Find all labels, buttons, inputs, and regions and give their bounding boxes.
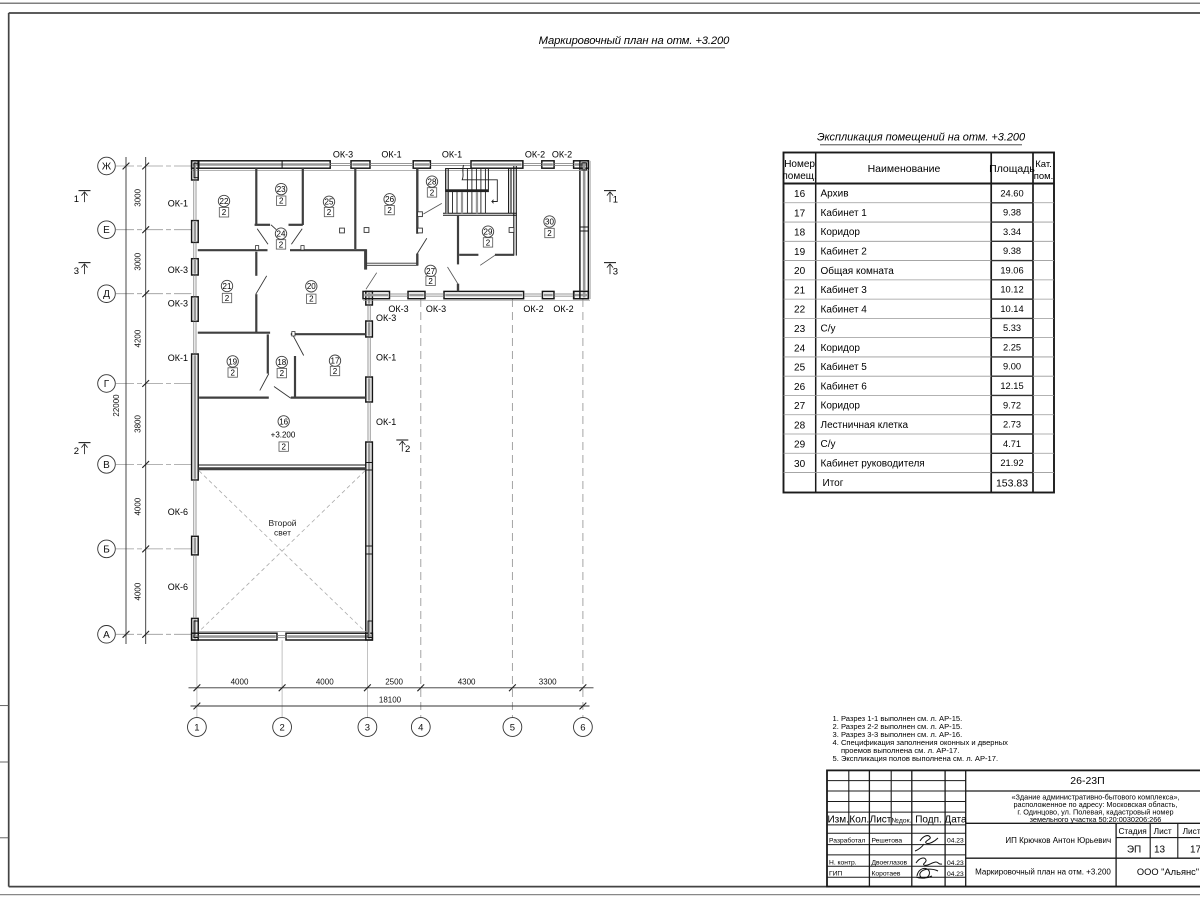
svg-text:Наименование: Наименование [868,163,941,175]
svg-text:Коридор: Коридор [821,343,861,354]
svg-text:4000: 4000 [134,582,143,600]
svg-text:2: 2 [428,277,433,286]
svg-text:2: 2 [387,206,392,215]
svg-text:26: 26 [794,382,806,393]
svg-text:4300: 4300 [458,677,476,686]
svg-text:пом.: пом. [1034,171,1054,182]
svg-text:Б: Б [103,544,110,555]
svg-text:свет: свет [274,527,291,537]
svg-text:ОК-3: ОК-3 [168,298,188,308]
svg-text:В: В [103,460,110,471]
svg-text:5. Экспликация полов выполнена: 5. Экспликация полов выполнена см. л. АР… [833,754,999,763]
svg-text:30: 30 [545,217,554,226]
svg-text:Кол.: Кол. [849,815,869,826]
svg-text:ОК-3: ОК-3 [376,313,396,323]
svg-text:Кат.: Кат. [1035,159,1052,170]
svg-text:2.25: 2.25 [1003,342,1021,352]
svg-text:Кабинет 5: Кабинет 5 [821,361,868,373]
svg-text:16: 16 [794,189,806,200]
svg-text:Д: Д [103,289,110,300]
svg-text:22: 22 [220,197,229,206]
svg-text:Номер: Номер [784,159,815,170]
svg-text:Кабинет 2: Кабинет 2 [821,246,868,258]
svg-text:Итог: Итог [823,478,844,489]
svg-text:24: 24 [794,343,806,354]
svg-text:ГИП: ГИП [829,871,842,878]
svg-text:ОК-3: ОК-3 [426,304,446,314]
svg-text:+3.200: +3.200 [271,430,296,439]
svg-text:2: 2 [281,443,286,452]
svg-text:29: 29 [794,440,806,451]
svg-text:ОК-6: ОК-6 [168,507,188,517]
svg-text:2: 2 [430,188,435,197]
svg-text:10.14: 10.14 [1000,304,1023,314]
svg-text:ЭП: ЭП [1127,845,1141,856]
svg-text:2: 2 [280,369,285,378]
svg-text:помещ.: помещ. [782,171,816,182]
svg-text:25: 25 [325,198,334,207]
svg-text:Коридор: Коридор [821,401,861,412]
svg-text:2500: 2500 [385,677,403,686]
svg-text:23: 23 [277,185,286,194]
svg-text:Листов: Листов [1183,826,1200,836]
svg-text:Ж: Ж [102,162,112,173]
svg-text:18100: 18100 [379,696,402,705]
svg-text:ОК-2: ОК-2 [523,304,543,314]
svg-text:ОК-1: ОК-1 [168,353,188,363]
svg-text:земельного участка 50:20:00302: земельного участка 50:20:0030206:266 [1030,815,1162,824]
svg-text:ИП Крючков Антон Юрьевич: ИП Крючков Антон Юрьевич [1005,836,1111,845]
svg-text:22: 22 [794,305,806,316]
svg-text:9.00: 9.00 [1003,362,1021,372]
svg-text:С/у: С/у [821,324,836,335]
svg-text:2: 2 [309,295,314,304]
svg-text:19: 19 [228,357,237,366]
svg-text:2: 2 [279,197,284,206]
svg-text:ОК-1: ОК-1 [168,199,188,209]
svg-text:ОК-2: ОК-2 [525,150,545,160]
svg-text:ОК-6: ОК-6 [168,582,188,592]
svg-text:27: 27 [426,267,435,276]
svg-text:2: 2 [327,208,332,217]
svg-text:25: 25 [794,363,806,374]
svg-text:Е: Е [103,225,110,236]
svg-text:ОК-1: ОК-1 [442,150,462,160]
svg-text:9.38: 9.38 [1003,246,1021,256]
svg-text:3: 3 [74,266,79,277]
svg-text:Кабинет 4: Кабинет 4 [821,303,868,315]
svg-text:3.34: 3.34 [1003,227,1021,237]
svg-text:21: 21 [794,285,806,296]
svg-text:19.06: 19.06 [1000,265,1023,275]
svg-text:1: 1 [194,722,199,733]
svg-text:2: 2 [74,446,79,457]
svg-text:Двоеглазов: Двоеглазов [872,860,908,867]
svg-text:2: 2 [230,368,235,377]
svg-text:Площадь: Площадь [989,163,1035,175]
svg-text:№док.: №док. [892,818,912,825]
svg-text:Н. контр.: Н. контр. [829,860,857,867]
svg-text:04.23: 04.23 [947,871,964,878]
svg-text:ОК-2: ОК-2 [552,150,572,160]
svg-text:18: 18 [794,228,806,239]
svg-text:26-23П: 26-23П [1070,775,1104,787]
svg-text:3: 3 [365,722,370,733]
svg-text:16: 16 [279,417,288,426]
svg-text:18: 18 [277,358,286,367]
svg-text:С/у: С/у [821,439,836,450]
svg-text:Кабинет 1: Кабинет 1 [821,207,868,219]
svg-text:ОК-3: ОК-3 [168,265,188,275]
svg-text:Лист: Лист [1154,826,1172,836]
svg-text:23: 23 [794,324,806,335]
svg-text:Экспликация помещений на отм.: Экспликация помещений на отм. +3.200 [817,132,1026,144]
svg-text:30: 30 [794,459,806,470]
svg-text:Г: Г [104,379,110,390]
svg-text:Решетова: Решетова [872,837,903,844]
svg-text:2: 2 [486,238,491,247]
svg-text:2: 2 [279,722,284,733]
svg-text:22000: 22000 [112,394,121,417]
svg-text:Маркировочный план на отм. +3.: Маркировочный план на отм. +3.200 [975,868,1111,877]
svg-text:Коротаев: Коротаев [872,871,901,878]
svg-text:4: 4 [418,722,423,733]
svg-text:Коридор: Коридор [821,227,861,238]
svg-text:5.33: 5.33 [1003,323,1021,333]
svg-text:2: 2 [333,367,338,376]
svg-text:Кабинет 6: Кабинет 6 [821,380,868,392]
svg-text:24: 24 [277,230,286,239]
svg-text:21: 21 [223,282,232,291]
svg-text:2: 2 [225,294,230,303]
svg-text:Стадия: Стадия [1118,826,1146,836]
svg-text:2: 2 [405,444,410,455]
svg-text:19: 19 [794,247,806,258]
svg-text:28: 28 [428,178,437,187]
svg-text:153.83: 153.83 [996,478,1028,490]
svg-text:Дата: Дата [944,815,967,826]
svg-text:2: 2 [279,240,284,249]
svg-text:20: 20 [794,266,806,277]
svg-text:24.60: 24.60 [1000,188,1023,198]
svg-text:ОК-2: ОК-2 [553,304,573,314]
svg-text:04.23: 04.23 [947,838,964,845]
svg-text:ОК-1: ОК-1 [376,353,396,363]
svg-text:28: 28 [794,420,806,431]
svg-text:4000: 4000 [316,677,334,686]
svg-text:ОК-1: ОК-1 [381,150,401,160]
svg-text:20: 20 [307,282,316,291]
svg-text:Архив: Архив [821,189,849,200]
svg-text:4000: 4000 [134,497,143,515]
svg-text:29: 29 [484,228,493,237]
svg-text:ОК-3: ОК-3 [333,150,353,160]
svg-text:4.71: 4.71 [1003,439,1021,449]
svg-text:1: 1 [74,194,79,205]
svg-text:Общая комната: Общая комната [821,265,895,277]
svg-text:9.72: 9.72 [1003,400,1021,410]
svg-text:26: 26 [385,195,394,204]
svg-text:2: 2 [222,208,227,217]
svg-text:Маркировочный план на отм. +3.: Маркировочный план на отм. +3.200 [539,35,731,47]
svg-text:3300: 3300 [539,677,557,686]
svg-text:17: 17 [794,208,806,219]
svg-text:Подп.: Подп. [915,815,942,826]
svg-text:Лист: Лист [870,815,892,826]
svg-text:2: 2 [547,229,552,238]
svg-text:17: 17 [1190,845,1200,856]
svg-text:3: 3 [613,267,618,278]
svg-text:ООО "Альянс": ООО "Альянс" [1137,867,1199,877]
svg-text:3800: 3800 [134,415,143,433]
svg-text:5: 5 [510,722,515,733]
svg-text:Лестничная клетка: Лестничная клетка [821,420,909,431]
svg-text:Кабинет 3: Кабинет 3 [821,284,868,296]
svg-text:Разработал: Разработал [829,836,865,844]
svg-text:4000: 4000 [231,677,249,686]
svg-text:04.23: 04.23 [947,860,964,867]
svg-text:ОК-1: ОК-1 [376,417,396,427]
svg-text:4200: 4200 [134,329,143,347]
svg-text:2.73: 2.73 [1003,420,1021,430]
svg-text:3000: 3000 [134,188,143,206]
svg-text:10.12: 10.12 [1000,285,1023,295]
svg-text:27: 27 [794,401,806,412]
svg-text:1: 1 [613,195,618,206]
svg-text:13: 13 [1154,845,1166,856]
svg-text:Кабинет руководителя: Кабинет руководителя [821,457,925,469]
svg-text:Изм.: Изм. [827,815,848,826]
svg-text:6: 6 [580,722,585,733]
svg-text:3000: 3000 [134,252,143,270]
svg-text:А: А [103,630,110,641]
svg-text:9.38: 9.38 [1003,208,1021,218]
svg-text:21.92: 21.92 [1000,458,1023,468]
svg-text:12.15: 12.15 [1000,381,1023,391]
svg-text:17: 17 [331,357,340,366]
